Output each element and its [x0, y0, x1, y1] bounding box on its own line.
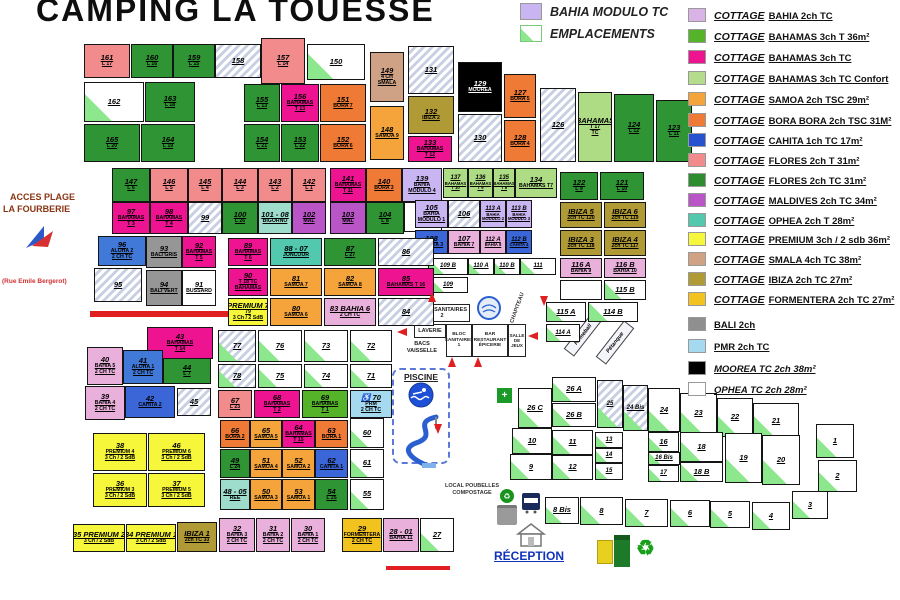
legend-swatch [520, 3, 542, 20]
plot-147: 147L 6 [112, 168, 150, 202]
plot-11: 11 [552, 430, 593, 455]
legend-label: COTTAGEBAHAMAS 3ch T 36m² [714, 27, 869, 45]
plot-3: 3 [792, 491, 828, 519]
legend-label: COTTAGEBORA BORA 2ch TSC 31M² [714, 111, 891, 129]
plot-122: 122L 9 [560, 172, 598, 200]
plot-109: 109 [428, 277, 468, 293]
plot-150: 150 [307, 44, 365, 80]
plot-96: 96ALOHA 22 CH TC [98, 236, 146, 266]
legend-label: MOOREA TC 2ch 38m² [714, 359, 816, 377]
legend-swatch [688, 113, 706, 127]
legend-item: COTTAGEFLORES 2ch T 31m² [688, 152, 859, 168]
plot-12: 12 [552, 455, 593, 480]
legend-swatch [688, 213, 706, 227]
plot-63: 63BORA 1 [315, 420, 348, 448]
plot-2: 2 [818, 460, 857, 492]
plot-9: 9 [510, 454, 552, 480]
legend-item: PMR 2ch TC [688, 338, 769, 354]
legend-label: BALI 2ch [714, 315, 755, 333]
legend-label: COTTAGESAMOA 2ch TSC 29m² [714, 90, 869, 108]
plot-160: 160L 16 [131, 44, 173, 78]
plot-161: 161L 17 [84, 44, 130, 78]
plot-24-bis: 24 Bis [623, 385, 648, 431]
plot-126: 126 [540, 88, 576, 162]
plot-32: 32BAHIA 32 CH TC [219, 518, 255, 552]
direction-arrow-up [448, 357, 456, 367]
legend-label: OPHEA TC 2ch 28m² [714, 380, 807, 398]
legend-label: COTTAGEBAHIA 2ch TC [714, 6, 833, 24]
plot-51: 51SAMOA 4 [250, 449, 282, 478]
petanque-court: Pétanque [596, 320, 635, 364]
plot-116-b: 116 BBAHIA 10 [604, 258, 646, 278]
plot-75: 75 [258, 364, 302, 388]
plot-109-b: 109 B [428, 258, 468, 275]
legend-label: COTTAGEMALDIVES 2ch TC 34m² [714, 191, 877, 209]
site-emblem-icon [477, 296, 501, 325]
plot-110-a: 110 A [468, 258, 494, 275]
plot-44: 44L 7 [163, 358, 211, 384]
plot-151: 151BORA 7 [320, 84, 366, 122]
plot-139: 139BAHIAMODULO 4 [402, 168, 442, 202]
plot-blank [560, 280, 602, 300]
plot-37: 37PREMIUM 53 Ch / 2 SdB [148, 473, 205, 507]
legend-item: COTTAGEBAHAMAS 3ch TC [688, 49, 851, 65]
plot-149: 1494 CHSMALA [370, 52, 404, 102]
plot-24: 24 [648, 388, 680, 432]
legend-item: COTTAGEOPHEA 2ch T 28m² [688, 212, 854, 228]
plot-16-bis: 16 Bis [648, 452, 680, 465]
plot-152: 152BORA 6 [320, 124, 366, 162]
plot-99: 99 [188, 202, 222, 234]
plot-1: 1 [816, 424, 854, 458]
laundry: LAVERIE [414, 324, 446, 338]
legend-swatch [688, 361, 706, 375]
legend-label: COTTAGEOPHEA 2ch T 28m² [714, 211, 854, 229]
plot-106: 106 [448, 200, 480, 228]
plot-131: 131 [408, 46, 454, 94]
plot-62: 62CAHITA 1 [315, 449, 348, 478]
plot-103: 103MAL [330, 202, 366, 234]
plot-18: 18 [680, 432, 723, 462]
direction-arrow-left [528, 332, 538, 340]
plot-80: 80SAMOA 6 [270, 298, 322, 326]
plot-73: 73 [304, 330, 348, 362]
plot-82: 82SAMOA 8 [324, 268, 376, 296]
plot-28-01: 28 - 01BAHIA 11 [383, 518, 419, 552]
legend-swatch [688, 29, 706, 43]
legend-swatch [520, 25, 542, 42]
legend-item: COTTAGEBAHAMAS 3ch T 36m² [688, 28, 869, 44]
plot-13: 13 [595, 432, 623, 448]
waste-area-label: LOCAL POUBELLESCOMPOSTAGE [445, 483, 499, 496]
plot-68: 68BAHAMAST 2 [254, 390, 300, 418]
plot-4: 4 [752, 502, 790, 530]
plot-129: 129MOOREA [458, 62, 502, 112]
legend-item: COTTAGESMALA 4ch TC 38m² [688, 251, 861, 267]
plot-141: 141BAHAMAST 11 [330, 168, 366, 202]
legend-swatch [688, 50, 706, 64]
plot-35-premium-2: 35 PREMIUM 23 Ch / 2 SdB [73, 524, 125, 552]
plot-114-b: 114 B [588, 302, 638, 322]
pool-label: PISCINE [404, 372, 438, 382]
big-top-label: CHAPITEAU [509, 292, 526, 324]
plot-158: 158 [215, 44, 261, 78]
legend-label: COTTAGECAHITA 1ch TC 17m² [714, 131, 863, 149]
plot-67: 67L 23 [218, 390, 252, 418]
plot-78: 78 [218, 364, 256, 388]
plot-39: 39BAHIA 42 CH TC [85, 386, 125, 420]
plot-112-a: 112 ABAHIA 8 [480, 230, 506, 254]
legend-label: COTTAGEBAHAMAS 3ch TC Confort [714, 69, 888, 87]
plot-7: 7 [625, 499, 668, 527]
plot-ibiza-4: IBIZA 42ch TC 117 [604, 230, 646, 256]
plot-76: 76 [258, 330, 302, 362]
legend-swatch [688, 92, 706, 106]
plot-64: 64BAHAMAST 15 [282, 420, 315, 448]
plot-18-b: 18 B [680, 462, 723, 482]
plot-116-a: 116 ABAHIA 9 [560, 258, 602, 278]
legend-swatch [688, 292, 706, 306]
legend-swatch [688, 8, 706, 22]
direction-arrow-left [397, 328, 407, 336]
plot-40: 40BAHIA 52 CH TC [87, 347, 123, 385]
legend-item: COTTAGEIBIZA 2ch TC 27m² [688, 271, 852, 287]
plot-102: 102MAL [292, 202, 326, 234]
plot-49: 49L 24 [220, 449, 250, 478]
plot-137: 137BAHAMAST 10 [443, 168, 468, 198]
plot-26-a: 26 A [552, 377, 596, 402]
dishwashing-label: BACSVAISSELLE [400, 341, 444, 355]
campsite-map: CAMPING LA TOUESSE ACCES PLAGE LA FOURBE… [0, 0, 900, 600]
swimmer-icon [408, 382, 434, 413]
plot-54: 54L 25 [315, 479, 348, 510]
plot-164: 164L 19 [141, 124, 195, 162]
direction-arrow-down [540, 296, 548, 306]
compost-icon: ♻ [500, 489, 514, 503]
plot-74: 74 [304, 364, 348, 388]
plot-90: 90T 18 TCBAHAMAS [228, 268, 268, 296]
plot-83-bahia-6: 83 BAHIA 62 CH TC [324, 298, 376, 326]
plot-45: 45 [177, 388, 211, 416]
street-name-label: (Rue Emile Bergerot) [2, 278, 67, 285]
plot-20: 20 [762, 435, 800, 485]
plot-157: 157L 14 [261, 38, 305, 84]
plot-165: 165L 20 [84, 124, 140, 162]
legend-label: COTTAGEIBIZA 2ch TC 27m² [714, 270, 852, 288]
legend-swatch [688, 317, 706, 331]
legend-label: COTTAGEFORMENTERA 2ch TC 27m² [714, 290, 894, 308]
sanitary-block-1: BLOCSANITAIRES1 [446, 324, 472, 357]
plot-100: 100L 26 [222, 202, 258, 234]
plot-135: 135BAHAMAST 8 [493, 168, 515, 198]
plot-153: 153L 22 [281, 124, 319, 162]
plot-85: 85BAHAMAS T 16 [378, 268, 434, 296]
beach-access-icon [22, 222, 60, 257]
plot-105: 105BAHIAMODULO 1 [415, 200, 448, 228]
legend-label: COTTAGESMALA 4ch TC 38m² [714, 250, 861, 268]
legend-item: COTTAGEBORA BORA 2ch TSC 31M² [688, 112, 891, 128]
plot-132: 132IBIZA 2 [408, 96, 454, 134]
legend-swatch [688, 252, 706, 266]
yellow-recycle-bin-icon [597, 540, 613, 564]
plot-104: 104L 8 [366, 202, 404, 234]
plot-145: 145L 4 [188, 168, 222, 202]
plot-16: 16 [648, 432, 679, 452]
legend-swatch [688, 193, 706, 207]
legend-item: COTTAGESAMOA 2ch TSC 29m² [688, 91, 869, 107]
plot-133: 133BAHAMAST 12 [408, 136, 452, 162]
legend-label: COTTAGEBAHAMAS 3ch TC [714, 48, 851, 66]
plot-5: 5 [710, 501, 750, 528]
plot-159: 159L 15 [173, 44, 215, 78]
plot-19: 19 [725, 433, 762, 483]
plot-46: 46PREMIUM 63 Ch / 2 SdB [148, 433, 205, 471]
plot-140: 140BORA 3 [366, 168, 402, 202]
plot-154: 154L 21 [244, 124, 280, 162]
plot-25: 25 [597, 380, 623, 428]
plot-69: 69BAHAMAST 1 [302, 390, 348, 418]
plot-155: 155L 13 [244, 84, 280, 122]
legend-swatch [688, 232, 706, 246]
game-room: SALLEDEJEUX [508, 324, 526, 357]
plot-124: 124L 12 [614, 94, 654, 162]
plot-26-b: 26 B [552, 403, 596, 427]
plot-127: 127BORA 5 [504, 74, 536, 118]
recycle-icon: ♻ [636, 536, 655, 561]
plot-premium-7: PREMIUM 7793 Ch / 2 SdB [228, 298, 268, 326]
legend-item: COTTAGEBAHAMAS 3ch TC Confort [688, 70, 888, 86]
legend-swatch [688, 382, 706, 396]
plot-89: 89BAHAMAST 6 [228, 238, 268, 266]
plot-23: 23 [680, 393, 717, 434]
plot-15: 15 [595, 463, 623, 480]
legend-label: COTTAGEFLORES 2ch TC 31m² [714, 171, 866, 189]
legend-swatch [688, 71, 706, 85]
plot-27: 27 [420, 518, 454, 552]
green-recycle-bin-icon [614, 535, 630, 567]
plot-128: 128BORA 4 [504, 120, 536, 162]
plot-112-b: 112 BCAHITA 4 [506, 230, 532, 254]
plot-ibiza-3: IBIZA 32ch TC 118 [560, 230, 602, 256]
plot-55: 55 [350, 479, 384, 510]
plot-97: 97BAHAMAST 3 [112, 202, 150, 234]
legend-label: PMR 2ch TC [714, 337, 769, 355]
plot-29: 29FORMENTERA2 CH TC [342, 518, 382, 552]
plot-144: 144L 3 [222, 168, 258, 202]
plot-91: 91BUSSARD [182, 270, 216, 306]
plot-114-a: 114 A [546, 324, 580, 342]
legend-label: COTTAGEPREMIUM 3ch / 2 sdb 36m² [714, 230, 890, 248]
direction-arrow-up [474, 357, 482, 367]
plot-88-07: 88 - 07JONCOUR [270, 238, 322, 266]
legend-item: COTTAGEPREMIUM 3ch / 2 sdb 36m² [688, 231, 890, 247]
legend-item: COTTAGECAHITA 1ch TC 17m² [688, 132, 863, 148]
reception-label: RÉCEPTION [494, 549, 564, 563]
plot-41: 41ALOHA 12 CH TC [123, 350, 163, 384]
plot-36: 36PREMIUM 33 Ch / 2 SdB [93, 473, 147, 507]
legend-item: BALI 2ch [688, 316, 755, 332]
legend-item: MOOREA TC 2ch 38m² [688, 360, 816, 376]
plot-53: 53SAMOA 1 [282, 479, 315, 510]
plot-38: 38PREMIUM 43 Ch / 2 SdB [93, 433, 147, 471]
plot-50: 50SAMOA 3 [250, 479, 282, 510]
beach-access-label-2: LA FOURBERIE [3, 204, 70, 214]
plot-84: 84 [378, 298, 434, 326]
plot-143: 143L 2 [258, 168, 292, 202]
plot-110-b: 110 B [494, 258, 520, 275]
plot-148: 148SAMOA 9 [370, 106, 404, 160]
plot-77: 77 [218, 330, 256, 362]
road-marking [386, 566, 450, 570]
legend-swatch [688, 272, 706, 286]
plot-ibiza-6: IBIZA 62ch TC 119 [604, 202, 646, 228]
legend-label: EMPLACEMENTS [550, 27, 655, 41]
plot-65: 65SAMOA 5 [250, 420, 282, 448]
waterslide-icon [396, 413, 446, 474]
plot-26-c: 26 C [518, 388, 552, 428]
plot-42: 42CAHITA 2 [125, 386, 175, 418]
trash-bin-icon [497, 505, 517, 525]
beach-access-label-1: ACCES PLAGE [10, 192, 75, 202]
plot-14: 14 [595, 448, 623, 463]
plot-113-a: 113 ABAHIAMODULO 2 [480, 200, 506, 228]
plot-115-a: 115 A [546, 302, 586, 322]
plot-bahamas: BAHAMAST 17TC [578, 92, 612, 162]
plot-81: 81SAMOA 7 [270, 268, 322, 296]
direction-arrow-down [434, 424, 442, 434]
plot-142: 142L 1 [292, 168, 326, 202]
plot-8: 8 [580, 497, 623, 525]
plot-113-b: 113 BBAHIAMODULO 3 [506, 200, 532, 228]
plot-93: 93BALI GRIS [146, 236, 182, 268]
plot-34-premium-1: 34 PREMIUM 13 Ch / 2 SdB [126, 524, 176, 552]
bus-shelter-icon [521, 492, 541, 519]
direction-arrow-up [428, 292, 436, 302]
plot-ibiza-1: IBIZA 12ch TC 33 [177, 522, 217, 552]
legend-item: COTTAGEFORMENTERA 2ch TC 27m² [688, 291, 894, 307]
plot-123: 123L 11 [656, 100, 692, 162]
legend-swatch [688, 153, 706, 167]
plot-17: 17 [648, 465, 679, 482]
plot-111: 111 [520, 258, 556, 275]
plot-94: 94BALI VERT [146, 270, 182, 306]
road-marking [90, 311, 228, 317]
legend-label: COTTAGEFLORES 2ch T 31m² [714, 151, 859, 169]
assembly-point-icon: + [497, 388, 512, 403]
plot-86: 86 [378, 238, 434, 266]
legend-item: COTTAGEBAHIA 2ch TC [688, 7, 833, 23]
legend-swatch [688, 173, 706, 187]
plot-121: 121L 10 [600, 172, 644, 200]
plot-ibiza-5: IBIZA 52ch TC 120 [560, 202, 602, 228]
plot-87: 87L 27 [324, 238, 376, 266]
legend-label: BAHIA MODULO TC [550, 5, 668, 19]
plot-130: 130 [458, 114, 502, 162]
plot-146: 146L 5 [150, 168, 188, 202]
plot-52: 52SAMOA 2 [282, 449, 315, 478]
plot-48-05: 48 - 05REE [220, 479, 250, 510]
plot-107: 107BAHIA 7 [448, 230, 480, 254]
legend-top-item: BAHIA MODULO TC [520, 3, 668, 20]
legend-swatch [688, 133, 706, 147]
plot-115-b: 115 B [604, 280, 646, 300]
legend-item: COTTAGEMALDIVES 2ch TC 34m² [688, 192, 877, 208]
plot-10: 10 [512, 428, 552, 454]
pool-area: PISCINE [392, 368, 450, 464]
plot-60: 60 [350, 418, 384, 448]
plot-30: 30BAHIA 12 CH TC [291, 518, 325, 552]
plot-72: 72 [350, 330, 392, 362]
plot-101-08: 101 - 08BIGORNO [258, 202, 292, 234]
plot-163: 163L 18 [145, 82, 195, 122]
plot-156: 156BAHAMAST 13 [281, 84, 319, 122]
plot-8-bis: 8 Bis [545, 497, 579, 524]
plot-66: 66BORA 2 [220, 420, 250, 448]
plot-95: 95 [94, 268, 142, 302]
legend-swatch [688, 339, 706, 353]
plot-134: 134BAHAMAS T7 [515, 168, 557, 198]
bar-restaurant: BARRESTAURANTÉPICERIE [472, 324, 508, 357]
plot-31: 31BAHIA 22 CH TC [256, 518, 290, 552]
plot-71: 71 [350, 364, 392, 388]
plot-136: 136BAHAMAST 9 [468, 168, 493, 198]
plot-98: 98BAHAMAST 4 [150, 202, 188, 234]
plot-6: 6 [670, 500, 710, 527]
legend-top-item: EMPLACEMENTS [520, 25, 655, 42]
page-title: CAMPING LA TOUESSE [36, 0, 435, 29]
legend-item: COTTAGEFLORES 2ch TC 31m² [688, 172, 866, 188]
plot-92: 92BAHAMAST 5 [182, 236, 216, 268]
plot-162: 162 [84, 82, 144, 122]
plot--70: ♿ 70PRM2 CH TC [350, 390, 392, 418]
plot-61: 61 [350, 449, 384, 478]
legend-item: OPHEA TC 2ch 28m² [688, 381, 807, 397]
